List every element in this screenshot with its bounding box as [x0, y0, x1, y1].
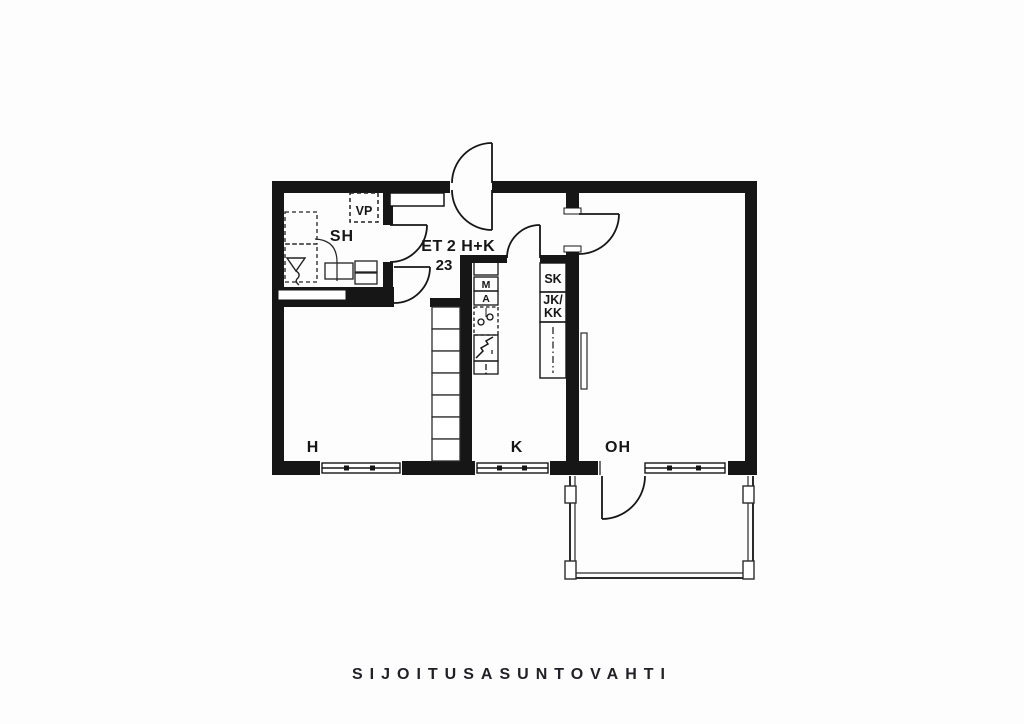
- room-label-oh: OH: [605, 439, 631, 456]
- appliance-label-a: A: [482, 293, 490, 305]
- appliance-label-m: M: [482, 279, 491, 291]
- entry-closet: [390, 193, 444, 206]
- windows: [320, 461, 728, 475]
- wall-et-oh-lower: [566, 250, 579, 461]
- vent-box: [474, 361, 498, 375]
- stove: [474, 335, 498, 361]
- wall-k-top-right: [540, 255, 566, 263]
- fixture-box-lower: [355, 273, 377, 284]
- door-balcony: [602, 476, 645, 519]
- room-label-h: H: [307, 439, 320, 456]
- fixture-box-upper: [355, 261, 377, 272]
- cabinet-label-sk: SK: [544, 272, 561, 286]
- wall-top-right: [492, 181, 757, 193]
- door-oh: [564, 208, 619, 254]
- wall-right: [745, 181, 757, 475]
- window-oh: [645, 463, 725, 473]
- title-room: ET: [421, 238, 442, 255]
- fixture-label-vp: VP: [356, 204, 373, 218]
- title-type: 2 H+K: [447, 238, 495, 255]
- balcony-posts: [565, 486, 754, 579]
- wall-et-oh-upper: [566, 193, 579, 210]
- wall-h-k: [460, 255, 472, 461]
- walls: [272, 181, 757, 475]
- shower-reservation-upper: [285, 212, 317, 244]
- title-area: 23: [436, 257, 453, 274]
- balcony-rail-outer: [570, 476, 753, 578]
- room-label-k: K: [511, 439, 524, 456]
- door-h: [394, 267, 430, 303]
- balcony: [565, 476, 754, 579]
- vanity-counter: [325, 263, 353, 279]
- wall-sh-right-lower: [383, 262, 393, 289]
- brand-wordmark: SIJOITUSASUNTOVAHTI: [0, 666, 1024, 684]
- duct-slot: [278, 290, 346, 300]
- wall-et-h-stub: [430, 298, 462, 307]
- window-h: [322, 463, 400, 473]
- sink-unit: [474, 307, 498, 335]
- page: SH VP ET 2 H+K 23 M A SK JK/ KK H K OH S…: [0, 0, 1024, 724]
- balcony-rail-inner: [575, 476, 748, 573]
- shower-corner-curve: [315, 239, 337, 281]
- floor-drain-icon: [287, 258, 305, 285]
- wardrobe-strip: [432, 307, 460, 461]
- floor-plan: SH VP ET 2 H+K 23 M A SK JK/ KK H K OH: [0, 0, 1024, 724]
- cabinet-label-kk: KK: [544, 306, 562, 320]
- radiator: [581, 333, 587, 389]
- door-entrance: [452, 143, 492, 230]
- door-k: [507, 225, 540, 258]
- kitchen-appliances: [474, 259, 498, 375]
- wall-left: [272, 181, 284, 475]
- wall-top-left: [272, 181, 450, 193]
- room-label-sh: SH: [330, 228, 354, 245]
- cabinet-label-jk: JK/: [543, 293, 563, 307]
- window-k: [477, 463, 548, 473]
